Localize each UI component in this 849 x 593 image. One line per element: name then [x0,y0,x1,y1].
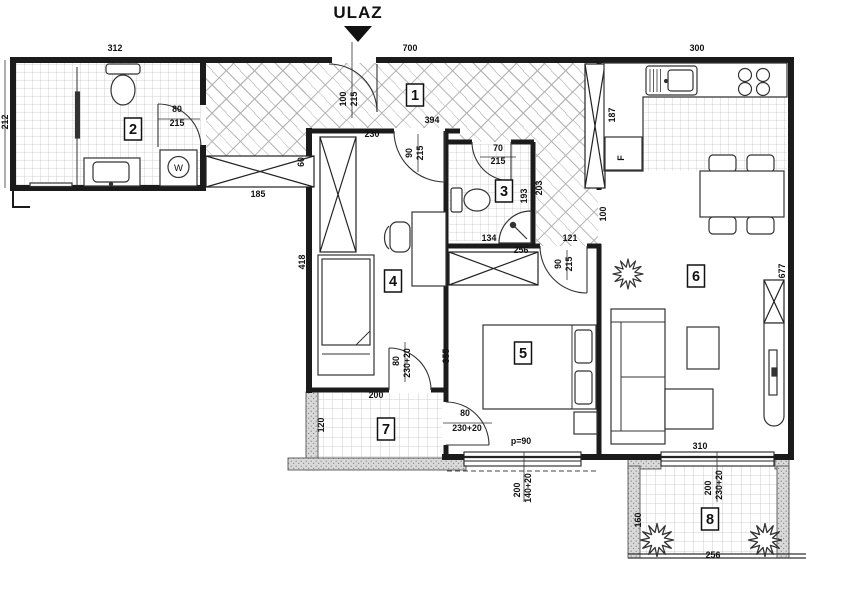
dim-label-230+20: 230+20 [452,423,482,433]
dim-label-100: 100 [598,207,608,222]
toilet-2 [451,188,490,212]
dim-label-256: 256 [706,550,721,560]
dim-label-193: 193 [519,189,529,204]
floor-plan-drawing: W [0,0,849,593]
room-6-number: 6 [692,269,700,285]
plant-living-room [613,259,643,289]
tv-crossed-box [764,280,784,323]
living-room-furniture [611,309,784,444]
dim-label-230+20: 230+20 [714,470,724,500]
dim-label-215: 215 [415,146,425,161]
hallway-herringbone-floor [206,63,598,246]
double-bed [483,325,596,409]
dim-label-80: 80 [391,356,401,366]
room-7-number: 7 [382,422,390,438]
dim-label-677: 677 [777,264,787,279]
dim-label-80: 80 [172,104,182,114]
dim-label-160: 160 [633,513,643,528]
kitchen-sink [646,66,697,95]
fridge [605,137,642,170]
single-bed [318,255,374,375]
room-1-number: 1 [411,88,419,104]
dim-label-256: 256 [514,245,529,255]
dim-label-140+20: 140+20 [523,473,533,503]
washer-label: W [174,163,183,174]
dim-label-230+20: 230+20 [402,348,412,378]
coffee-table [687,327,719,369]
room-2-number: 2 [129,122,137,138]
vanity-sink [84,158,140,186]
dim-label-215: 215 [349,92,359,107]
bedroom-5-wardrobe [449,252,538,285]
fridge-label: F [616,155,626,161]
threshold [30,183,72,187]
dim-label-120: 120 [316,418,326,433]
dim-label-394: 394 [425,115,440,125]
entrance-label: ULAZ [333,3,382,22]
dim-label-121: 121 [563,233,578,243]
dim-label-185: 185 [251,189,266,199]
dim-label-230: 230 [365,129,380,139]
room-4-number: 4 [389,274,397,290]
bedroom-5-furniture [483,325,597,434]
dim-label-215: 215 [491,156,506,166]
dim-label-70: 70 [493,143,503,153]
room-5-number: 5 [519,346,527,362]
dim-label-134: 134 [482,233,497,243]
dim-label-203: 203 [534,181,544,196]
exterior-step-lines [13,191,30,207]
bedroom-4-wardrobe [320,137,356,252]
dim-label-700: 700 [403,43,418,53]
dim-label-215: 215 [170,118,185,128]
shaft-box [585,64,605,188]
desk [412,212,446,286]
floor-plan-page: W [0,0,849,593]
dim-label-418: 418 [297,255,307,270]
nightstand [574,412,597,434]
dim-label-200: 200 [703,481,713,496]
dim-label-355: 355 [441,349,451,364]
tv-cabinet [764,323,784,426]
living-room-window [661,452,774,466]
dim-label-187: 187 [607,108,617,123]
dim-label-80: 80 [460,408,470,418]
dim-label-300: 300 [690,43,705,53]
dim-label-310: 310 [693,441,708,451]
room-3-number: 3 [500,184,508,200]
room-8-number: 8 [706,512,714,528]
dim-label-90: 90 [404,148,414,158]
dim-label-100: 100 [338,92,348,107]
dim-label-212: 212 [0,115,10,130]
entrance-arrow-icon [344,26,372,42]
dim-label-200: 200 [512,483,522,498]
dim-label-90: 90 [553,259,563,269]
bedroom-5-window [464,452,581,466]
dim-label-200: 200 [369,390,384,400]
dim-label-p=90: p=90 [511,436,531,446]
dim-label-312: 312 [108,43,123,53]
dim-label-60: 60 [296,157,306,167]
dim-label-215: 215 [564,257,574,272]
desk-chair [385,222,411,252]
